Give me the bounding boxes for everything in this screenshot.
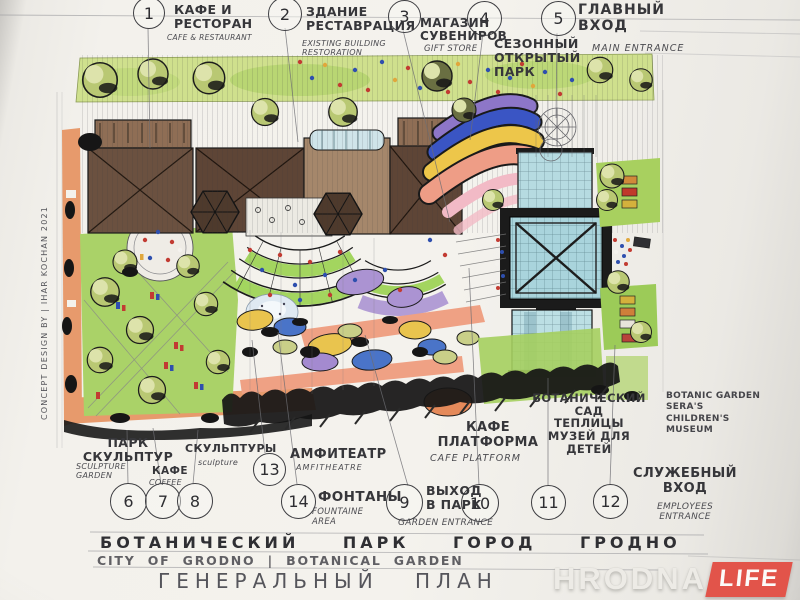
callout-1-label-ru: КАФЕ И РЕСТОРАН	[174, 3, 253, 31]
designer-credit: CONCEPT DESIGN BY | IHAR KOCHAN 2021	[40, 160, 49, 420]
callout-13-number: 13	[253, 453, 286, 486]
callout-9-label-ru: ВЫХОД В ПАРК	[426, 484, 482, 512]
callout-8-label-ru: СКУЛЬПТУРЫ	[185, 443, 277, 455]
callout-14-label-en: FOUNTAINE AREA	[312, 508, 363, 527]
callout-8-number: 8	[177, 483, 213, 519]
callout-7-number: 7	[145, 483, 181, 519]
callout-6-label-ru: ПАРК СКУЛЬПТУР	[80, 436, 176, 464]
title-plan: ГЕНЕРАЛЬНЫЙ ПЛАН	[158, 569, 498, 593]
title-en: CITY OF GRODNO | BOTANICAL GARDEN	[97, 553, 464, 568]
callout-14-label-ru: ФОНТАНЫ	[318, 490, 402, 505]
callout-5-label-en: MAIN ENTRANCE	[592, 44, 684, 55]
hrodna-life-logo: HRODNA LIFE	[553, 561, 789, 597]
callout-8-label-en: sculpture	[198, 459, 238, 468]
callout-10-label-ru: КАФЕ ПЛАТФОРМА	[433, 421, 543, 450]
callout-9-label-en: GARDEN ENTRANCE	[398, 518, 493, 528]
callout-11-label-ru: БОТАНИЧЕСКИЙ САД ТЕПЛИЦЫ МУЗЕЙ ДЛЯ ДЕТЕЙ	[528, 392, 650, 455]
side-note-children-museum: BOTANIC GARDEN SERA'S CHILDREN'S MUSEUM	[666, 391, 760, 436]
callout-5-label-ru: ГЛАВНЫЙ ВХОД	[578, 3, 665, 34]
callout-1-label-en: CAFE & RESTAURANT	[167, 34, 252, 42]
callout-4-label-ru: СЕЗОННЫЙ ОТКРЫТЫЙ ПАРК	[494, 37, 581, 79]
callout-12-label-ru: СЛУЖЕБНЫЙ ВХОД	[625, 467, 745, 496]
photo-of-hand-drawn-masterplan: { "document": { "type": "hand-drawn land…	[0, 0, 800, 600]
callout-5-number: 5	[541, 1, 576, 36]
logo-hrodna-text: HRODNA	[553, 561, 707, 597]
callout-7-label-en: COFFEE	[149, 479, 182, 488]
callout-7-label-ru: КАФЕ	[152, 466, 188, 478]
callout-11-number: 11	[531, 485, 566, 520]
callout-10-label-en: CAFE PLATFORM	[430, 454, 521, 465]
callout-3-label-en: GIFT STORE	[424, 45, 477, 55]
title-ru: БОТАНИЧЕСКИЙ ПАРК ГОРОД ГРОДНО	[100, 533, 681, 552]
callout-6-label-en: SCULPTURE GARDEN	[76, 463, 126, 481]
callout-2-label-ru: ЗДАНИЕ РЕСТАВРАЦИЯ	[306, 5, 416, 33]
callout-13-label-ru: АМФИТЕАТР	[290, 448, 387, 463]
logo-life-badge: LIFE	[705, 562, 792, 597]
callout-6-number: 6	[110, 483, 147, 520]
logo-life-text: LIFE	[718, 565, 781, 593]
callout-12-label-en: EMPLOYEES ENTRANCE	[638, 502, 732, 522]
callout-13-label-en: AMFITHEATRE	[296, 464, 363, 473]
callout-12-number: 12	[593, 484, 628, 519]
callout-2-label-en: EXISTING BUILDING RESTORATION	[302, 40, 386, 58]
callout-14-number: 14	[281, 484, 316, 519]
